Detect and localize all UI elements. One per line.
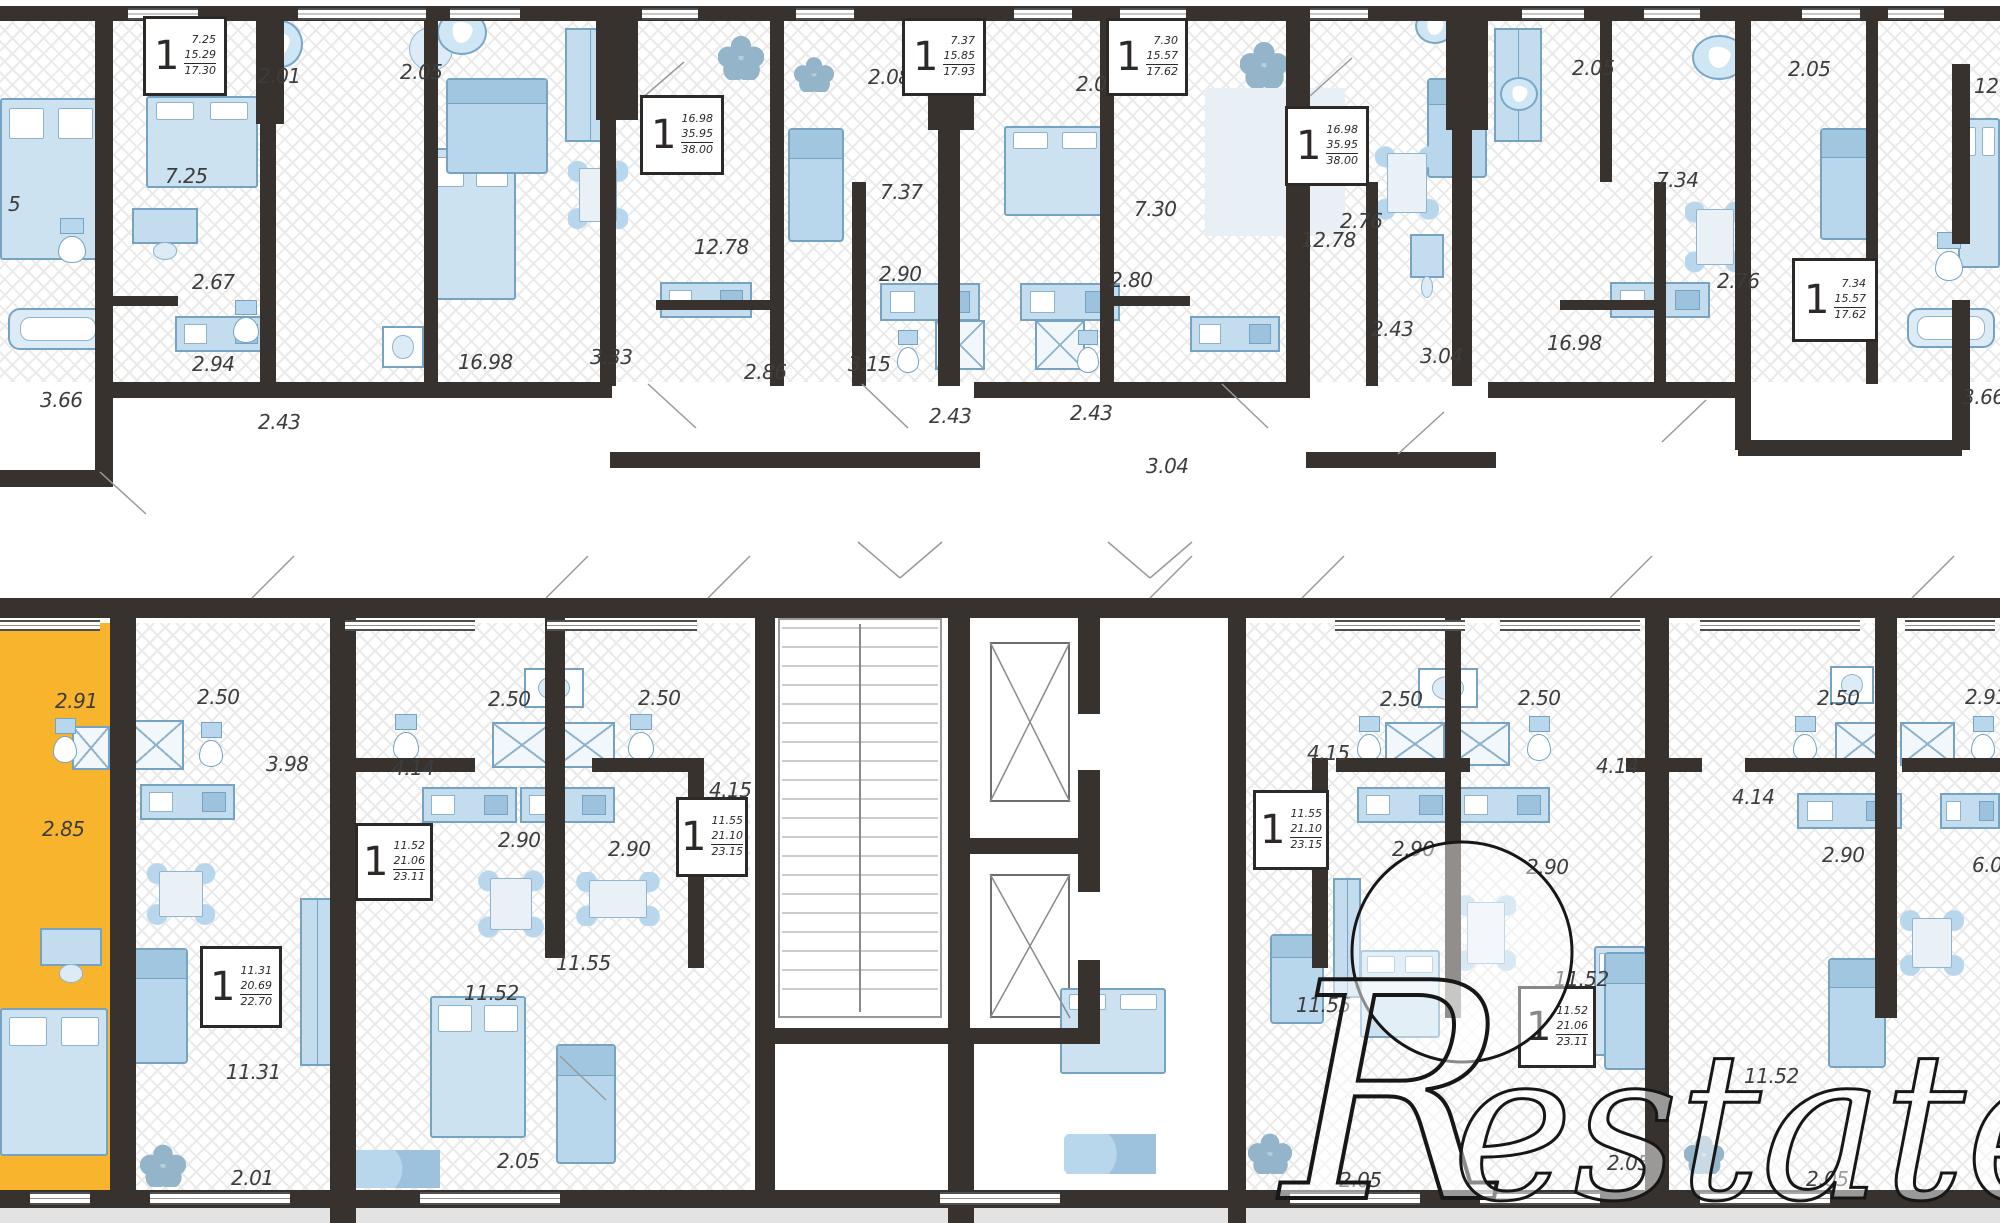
desk-icon <box>40 928 102 966</box>
room-count: 1 <box>651 115 676 155</box>
window <box>796 8 854 20</box>
elevator-shaft <box>990 874 1070 1018</box>
window <box>420 1192 560 1205</box>
kitchen-icon <box>140 784 235 820</box>
unit-areas: 11.5521.1023.15 <box>711 814 743 860</box>
plant-icon <box>140 1143 186 1187</box>
staircase <box>778 618 942 1018</box>
window <box>450 8 520 20</box>
toilet-icon <box>1524 716 1554 762</box>
window <box>1522 8 1584 20</box>
wall <box>1645 598 1669 1192</box>
window <box>0 620 100 631</box>
window <box>1335 620 1465 631</box>
toilet-icon <box>390 714 422 762</box>
unit-areas: 11.5221.0623.11 <box>393 839 425 885</box>
room-count: 1 <box>210 967 235 1007</box>
wall <box>755 1028 1100 1044</box>
window <box>345 620 475 631</box>
shower-icon <box>492 722 552 768</box>
tub-icon <box>8 308 108 350</box>
unit-areas: 16.9835.9538.00 <box>681 112 713 158</box>
table4-icon <box>568 158 628 232</box>
unit-areas: 7.2515.2917.30 <box>184 33 216 79</box>
room-count: 1 <box>1260 810 1285 850</box>
wall <box>755 598 775 1048</box>
toilet-icon <box>894 330 922 374</box>
unit-areas: 11.5521.1023.15 <box>1290 807 1322 853</box>
desk-icon <box>1410 234 1444 278</box>
unit-info-box: 116.9835.9538.00 <box>1285 106 1369 186</box>
unit-info-box: 111.5221.0623.11 <box>1518 986 1596 1068</box>
window <box>940 1192 1060 1205</box>
window <box>642 8 698 20</box>
wall <box>656 300 772 310</box>
wall <box>610 452 980 468</box>
wall <box>1445 598 1461 1018</box>
wall <box>1336 758 1470 772</box>
kitchen-icon <box>1455 787 1550 823</box>
bed-icon <box>1004 126 1106 216</box>
plant-icon <box>1248 1132 1292 1174</box>
wall <box>0 470 97 487</box>
window <box>298 8 426 20</box>
bed-icon <box>1360 950 1440 1038</box>
toilet-icon <box>50 718 80 764</box>
table4-icon <box>146 862 216 926</box>
wall <box>95 382 612 398</box>
window <box>1802 8 1860 20</box>
elevator-shaft <box>990 642 1070 802</box>
wall <box>974 382 1310 398</box>
wall <box>545 598 565 958</box>
kitchen-icon <box>880 283 980 321</box>
tub-icon <box>1907 308 1995 348</box>
unit-info-box: 17.3015.5717.62 <box>1106 18 1188 96</box>
bed-icon <box>430 996 526 1138</box>
wall <box>1446 6 1488 130</box>
table4-icon <box>572 872 664 926</box>
wall <box>95 6 113 487</box>
kitchen-icon <box>422 787 517 823</box>
sofa-icon <box>556 1044 616 1164</box>
wall <box>1106 296 1190 306</box>
floor-plan: R estate 57.252.012.052.672.942.433.6616… <box>0 0 2000 1223</box>
desk-icon <box>132 208 198 244</box>
wall <box>938 128 960 386</box>
wall <box>1228 598 1246 1223</box>
plant-icon <box>794 56 834 92</box>
window <box>1014 8 1072 20</box>
room-count: 1 <box>913 37 938 77</box>
footer-strip <box>0 1206 2000 1223</box>
washer-icon <box>382 326 424 368</box>
plant-icon <box>1240 40 1288 88</box>
wall <box>1875 598 1897 1018</box>
plant-icon <box>718 34 764 80</box>
unit-areas: 7.3415.5717.62 <box>1834 277 1866 323</box>
wall <box>0 598 2000 618</box>
wall <box>1286 6 1310 386</box>
sofa-icon <box>132 948 188 1064</box>
pouf-icon <box>1064 1134 1156 1174</box>
unit-areas: 11.5221.0623.11 <box>1556 1004 1588 1050</box>
table4-icon <box>1900 908 1964 978</box>
wall <box>1560 300 1656 310</box>
unit-areas: 7.3015.5717.62 <box>1146 34 1178 80</box>
shower-icon <box>128 720 184 770</box>
room-count: 1 <box>1804 280 1829 320</box>
window <box>150 1192 290 1205</box>
wall <box>260 118 276 386</box>
table4-icon <box>478 868 544 940</box>
table4-icon <box>1456 890 1516 976</box>
wall <box>770 6 784 386</box>
toilet-icon <box>1074 330 1102 374</box>
window <box>547 620 697 631</box>
wall <box>948 838 1100 854</box>
unit-info-box: 111.3120.6922.70 <box>200 946 282 1028</box>
kitchen-icon <box>1940 793 2000 829</box>
toilet-icon <box>1968 716 1998 762</box>
room-count: 1 <box>1526 1007 1551 1047</box>
wall <box>592 758 688 772</box>
window <box>1500 620 1640 631</box>
window <box>1700 620 1860 631</box>
unit-areas: 11.3120.6922.70 <box>240 964 272 1010</box>
drop-icon <box>1500 77 1538 111</box>
wall <box>1078 770 1100 892</box>
toilet-icon <box>196 722 226 768</box>
unit-info-box: 17.2515.2917.30 <box>143 16 227 96</box>
unit-info-box: 111.5221.0623.11 <box>355 823 433 901</box>
wall <box>96 296 178 306</box>
window <box>1905 620 1995 631</box>
wall <box>1902 758 2000 772</box>
window <box>1644 8 1700 20</box>
room-count: 1 <box>363 842 388 882</box>
wall <box>755 1044 775 1192</box>
toilet-icon <box>230 300 262 344</box>
window <box>1888 8 1944 20</box>
wall <box>1745 758 1875 772</box>
wall <box>110 598 136 1192</box>
window <box>1290 1192 1420 1205</box>
window <box>30 1192 90 1205</box>
unit-areas: 16.9835.9538.00 <box>1326 123 1358 169</box>
pouf-icon <box>352 1150 440 1188</box>
toilet-icon <box>55 218 89 264</box>
plant-icon <box>1684 1134 1724 1174</box>
toilet-icon <box>1354 716 1384 762</box>
window <box>1310 8 1368 20</box>
unit-info-box: 17.3415.5717.62 <box>1792 258 1878 342</box>
room-count: 1 <box>1296 126 1321 166</box>
unit-areas: 7.3715.8517.93 <box>943 34 975 80</box>
wall <box>330 598 356 1223</box>
window <box>1480 1192 1600 1205</box>
wall <box>596 6 638 120</box>
kitchen-icon <box>1357 787 1452 823</box>
kitchen-icon <box>1190 316 1280 352</box>
wall <box>1600 6 1612 182</box>
room-count: 1 <box>1116 37 1141 77</box>
unit-info-box: 17.3715.8517.93 <box>902 18 986 96</box>
wall <box>1654 182 1666 386</box>
wall <box>1952 300 1970 450</box>
toilet-icon <box>1790 716 1820 762</box>
unit-info-box: 116.9835.9538.00 <box>640 95 724 175</box>
window <box>1700 1192 1830 1205</box>
bed-icon <box>0 1008 108 1156</box>
kitchen-icon <box>520 787 615 823</box>
wall <box>1306 452 1496 468</box>
wardrobe-icon <box>300 898 334 1066</box>
sofa-icon <box>788 128 844 242</box>
wall <box>1078 614 1100 714</box>
toilet-icon <box>625 714 657 762</box>
table4-icon <box>1375 142 1439 224</box>
sofa-icon <box>446 78 548 174</box>
wall <box>1738 440 1962 456</box>
wall <box>948 614 970 1028</box>
wall <box>1952 64 1970 244</box>
wardrobe-icon <box>1333 878 1361 998</box>
wall <box>1488 382 1740 398</box>
unit-info-box: 111.5521.1023.15 <box>1253 790 1329 870</box>
unit-info-box: 111.5521.1023.15 <box>676 797 748 877</box>
room-count: 1 <box>154 36 179 76</box>
room-count: 1 <box>681 817 706 857</box>
